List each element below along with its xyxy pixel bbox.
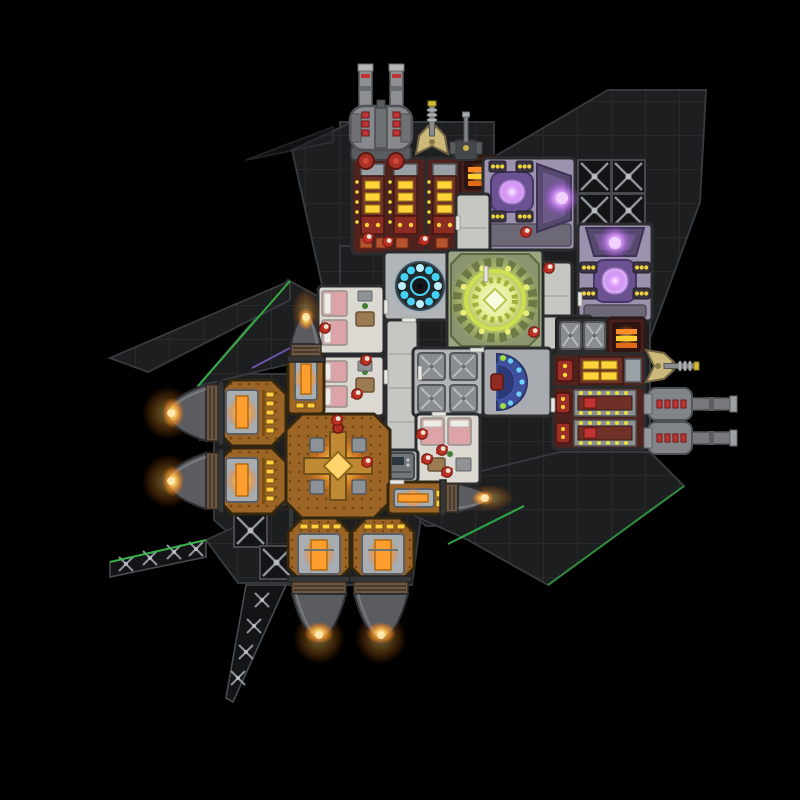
crew-member[interactable] (351, 389, 363, 399)
door (390, 480, 404, 484)
room-control-room[interactable] (483, 348, 551, 416)
room-engine-room-large[interactable] (286, 414, 390, 518)
room-crate-stack[interactable] (556, 318, 608, 354)
game-viewport (0, 0, 800, 800)
room-storage-room[interactable] (413, 348, 483, 416)
door (418, 366, 422, 380)
crew-member[interactable] (441, 467, 453, 477)
crew-member[interactable] (418, 235, 430, 245)
room-thruster-housing[interactable] (288, 354, 324, 414)
crew-member[interactable] (360, 355, 372, 365)
crew-member[interactable] (319, 323, 331, 333)
truss-tile[interactable] (578, 194, 611, 227)
room-reactor-small[interactable] (384, 252, 456, 320)
room-engine-room[interactable] (288, 518, 350, 582)
room-shield-generator[interactable] (483, 158, 579, 250)
room-ammo-factory-right[interactable] (553, 387, 645, 449)
crew-member[interactable] (520, 227, 532, 237)
ship-blueprint (0, 0, 800, 800)
room-ammo-machine-row[interactable] (553, 354, 645, 387)
room-engine-room[interactable] (218, 380, 286, 446)
door (470, 348, 484, 352)
room-vent-box[interactable] (608, 318, 645, 356)
truss-tile[interactable] (234, 514, 267, 547)
room-engine-room[interactable] (352, 518, 414, 582)
crew-member[interactable] (436, 445, 448, 455)
crew-member[interactable] (361, 457, 373, 467)
door (402, 318, 416, 322)
door (384, 300, 388, 314)
room-crew-quarters[interactable] (318, 286, 384, 354)
crew-member[interactable] (421, 454, 433, 464)
crew-member[interactable] (543, 263, 555, 273)
crew-member[interactable] (382, 237, 394, 247)
door (432, 412, 446, 416)
door (578, 292, 582, 306)
truss-tile[interactable] (612, 194, 645, 227)
crew-member[interactable] (331, 415, 343, 425)
room-thruster-housing[interactable] (388, 482, 446, 514)
room-crew-quarters[interactable] (318, 356, 384, 416)
crew-member[interactable] (528, 327, 540, 337)
door (484, 266, 488, 282)
room-engine-room[interactable] (218, 448, 286, 514)
door (456, 216, 460, 230)
crew-member[interactable] (362, 233, 374, 243)
crew-member[interactable] (416, 429, 428, 439)
truss-tile[interactable] (612, 160, 645, 193)
truss-tile[interactable] (578, 160, 611, 193)
door (384, 370, 388, 384)
door (551, 398, 555, 412)
room-shield-generator[interactable] (578, 224, 652, 321)
